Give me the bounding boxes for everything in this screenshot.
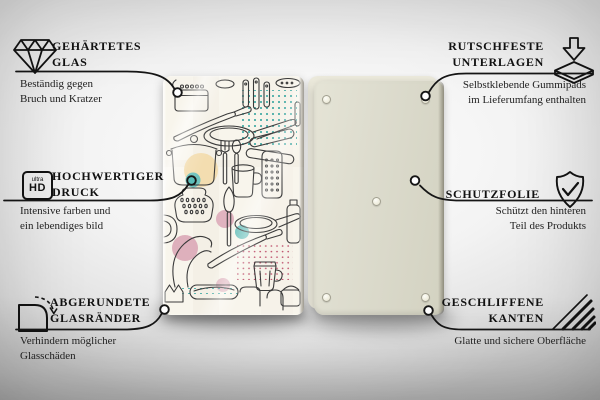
feature-title: GESCHLIFFENE KANTEN — [442, 294, 544, 326]
glass-edge — [299, 76, 304, 315]
feature-subtitle: Intensive farben und ein lebendiges bild — [20, 204, 110, 233]
feature-title: HOCHWERTIGER DRUCK — [52, 168, 164, 200]
subtitle-line: Beständig gegen — [20, 77, 102, 92]
ultra-hd-icon-text-big: HD — [29, 183, 46, 194]
glass-board-front — [163, 76, 304, 315]
title-line: UNTERLAGEN — [448, 54, 544, 70]
title-line: KANTEN — [442, 310, 544, 326]
title-line: RUTSCHFESTE — [448, 38, 544, 54]
diamond-icon — [13, 36, 57, 81]
rubber-pad — [372, 197, 381, 206]
subtitle-line: ein lebendiges bild — [20, 219, 110, 234]
feature-title: RUTSCHFESTE UNTERLAGEN — [448, 38, 544, 70]
rubber-pad — [322, 293, 331, 302]
subtitle-line: Selbstklebende Gummipads — [463, 78, 586, 93]
title-line: DRUCK — [52, 184, 164, 200]
feature-title: ABGERUNDETE GLASRÄNDER — [50, 294, 150, 326]
board-back — [314, 81, 444, 315]
ultra-hd-icon: ultra HD — [22, 171, 53, 200]
subtitle-line: Intensive farben und — [20, 204, 110, 219]
product-infographic: GEHÄRTETES GLAS Beständig gegen Bruch un… — [0, 0, 600, 400]
feature-subtitle: Glatte und sichere Oberfläche — [454, 334, 586, 349]
feature-title: GEHÄRTETES GLAS — [52, 38, 141, 70]
subtitle-line: Bruch und Kratzer — [20, 92, 102, 107]
subtitle-line: Glatte und sichere Oberfläche — [454, 334, 586, 349]
title-line: ABGERUNDETE — [50, 294, 150, 310]
rubber-pad — [421, 95, 430, 104]
subtitle-line: Teil des Produkts — [496, 219, 586, 234]
feature-subtitle: Beständig gegen Bruch und Kratzer — [20, 77, 102, 106]
title-line: GLAS — [52, 54, 141, 70]
subtitle-line: Glasschäden — [20, 349, 116, 364]
feature-subtitle: Verhindern möglicher Glasschäden — [20, 334, 116, 363]
subtitle-line: Schützt den hinteren — [496, 204, 586, 219]
back-panel-edge — [438, 81, 444, 315]
title-line: GLASRÄNDER — [50, 310, 150, 326]
feature-subtitle: Selbstklebende Gummipads im Lieferumfang… — [463, 78, 586, 107]
kitchen-utensils-pattern — [163, 76, 304, 315]
rubber-pad — [421, 293, 430, 302]
polished-edges-icon — [551, 292, 596, 337]
rubber-pad — [322, 95, 331, 104]
subtitle-line: Verhindern möglicher — [20, 334, 116, 349]
feature-subtitle: Schützt den hinteren Teil des Produkts — [496, 204, 586, 233]
title-line: SCHUTZFOLIE — [446, 186, 540, 202]
title-line: HOCHWERTIGER — [52, 168, 164, 184]
title-line: GESCHLIFFENE — [442, 294, 544, 310]
subtitle-line: im Lieferumfang enthalten — [463, 93, 586, 108]
feature-title: SCHUTZFOLIE — [446, 186, 540, 202]
title-line: GEHÄRTETES — [52, 38, 141, 54]
